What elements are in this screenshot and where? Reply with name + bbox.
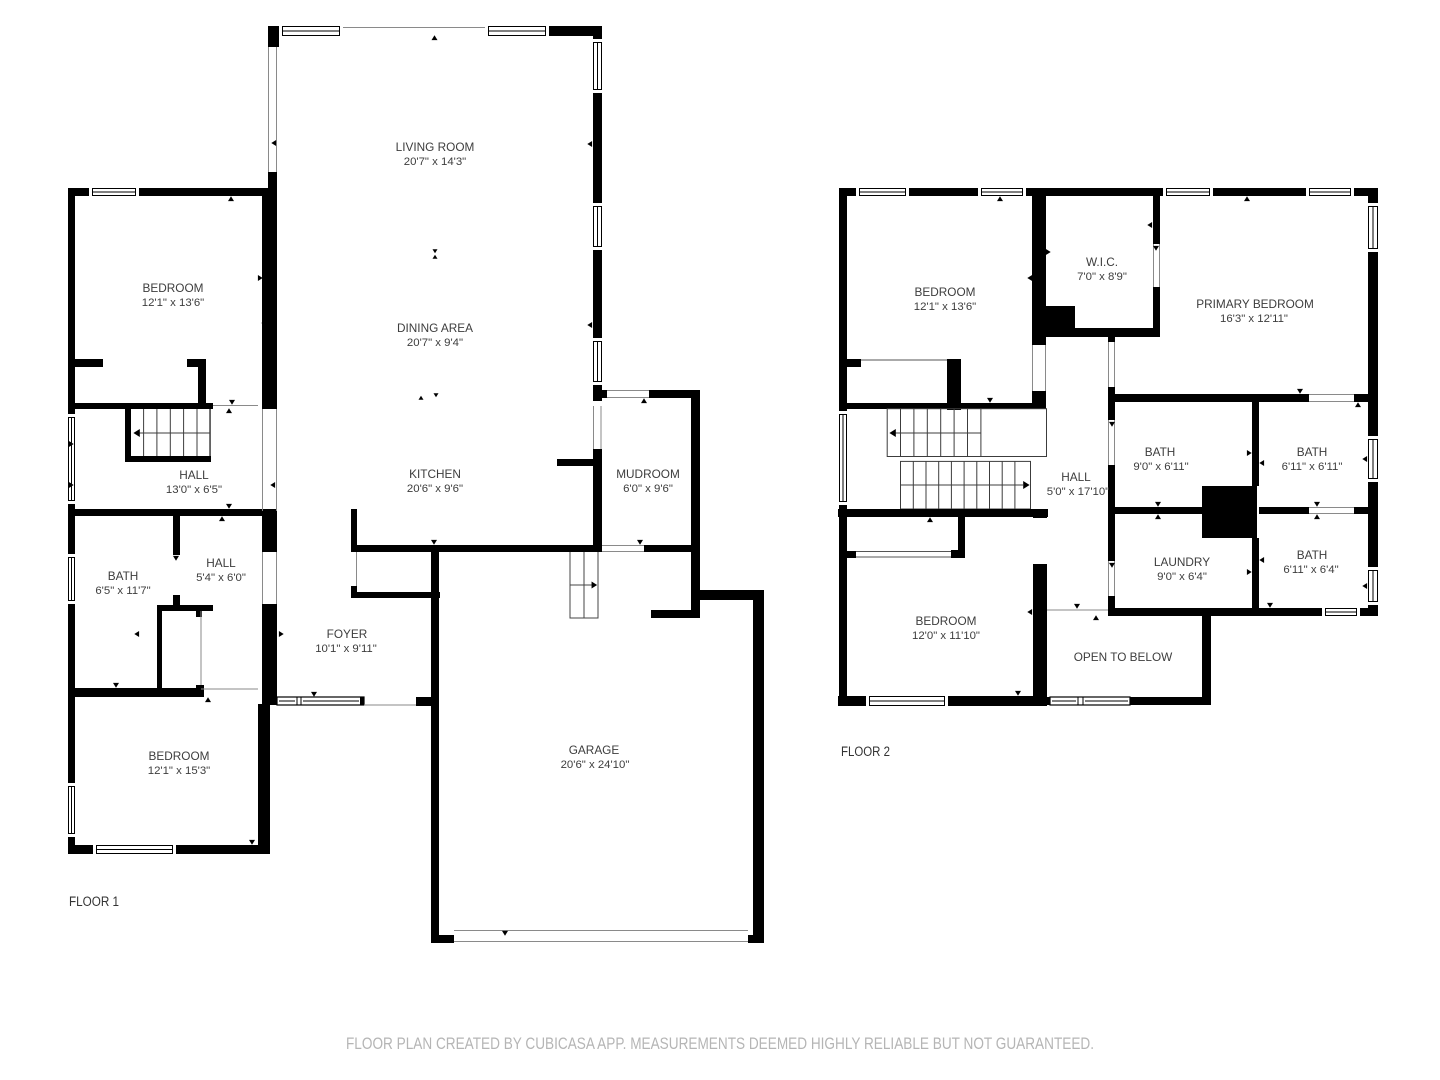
svg-text:LAUNDRY: LAUNDRY (1154, 555, 1210, 569)
svg-text:BATH: BATH (1297, 548, 1328, 562)
svg-text:10'1" x 9'11": 10'1" x 9'11" (315, 643, 377, 655)
svg-text:BEDROOM: BEDROOM (915, 285, 976, 299)
svg-text:7'0" x 8'9": 7'0" x 8'9" (1077, 271, 1127, 283)
svg-text:6'11" x 6'4": 6'11" x 6'4" (1283, 564, 1338, 576)
svg-text:BEDROOM: BEDROOM (143, 281, 204, 295)
svg-text:5'0" x 17'10": 5'0" x 17'10" (1047, 486, 1109, 498)
svg-text:FLOOR 2: FLOOR 2 (841, 744, 890, 759)
svg-text:HALL: HALL (179, 468, 209, 482)
svg-text:20'6" x 24'10": 20'6" x 24'10" (561, 759, 630, 771)
svg-text:MUDROOM: MUDROOM (616, 467, 680, 481)
svg-text:PRIMARY BEDROOM: PRIMARY BEDROOM (1196, 297, 1314, 311)
svg-text:BATH: BATH (1145, 445, 1176, 459)
svg-text:FLOOR PLAN CREATED BY CUBICASA: FLOOR PLAN CREATED BY CUBICASA APP. MEAS… (346, 1034, 1094, 1053)
svg-text:6'11" x 6'11": 6'11" x 6'11" (1282, 461, 1343, 473)
svg-text:GARAGE: GARAGE (569, 743, 620, 757)
svg-text:9'0" x 6'11": 9'0" x 6'11" (1133, 461, 1188, 473)
svg-text:12'0" x 11'10": 12'0" x 11'10" (912, 630, 980, 642)
svg-text:BATH: BATH (108, 569, 139, 583)
svg-text:6'0" x 9'6": 6'0" x 9'6" (623, 483, 673, 495)
svg-text:12'1" x 13'6": 12'1" x 13'6" (914, 301, 976, 313)
svg-text:HALL: HALL (206, 556, 236, 570)
svg-text:12'1" x 15'3": 12'1" x 15'3" (148, 765, 210, 777)
svg-text:BEDROOM: BEDROOM (149, 749, 210, 763)
svg-text:16'3" x 12'11": 16'3" x 12'11" (1220, 313, 1288, 325)
svg-text:FLOOR 1: FLOOR 1 (69, 894, 119, 909)
svg-text:BEDROOM: BEDROOM (916, 614, 977, 628)
svg-text:FOYER: FOYER (327, 627, 368, 641)
svg-text:DINING AREA: DINING AREA (397, 321, 473, 335)
svg-text:20'6" x 9'6": 20'6" x 9'6" (407, 483, 463, 495)
svg-text:KITCHEN: KITCHEN (409, 467, 461, 481)
svg-text:9'0" x 6'4": 9'0" x 6'4" (1157, 571, 1207, 583)
svg-text:20'7" x 14'3": 20'7" x 14'3" (404, 156, 466, 168)
svg-text:12'1" x 13'6": 12'1" x 13'6" (142, 297, 204, 309)
svg-text:6'5" x 11'7": 6'5" x 11'7" (95, 585, 150, 597)
svg-text:HALL: HALL (1061, 470, 1091, 484)
svg-text:20'7" x 9'4": 20'7" x 9'4" (407, 337, 463, 349)
svg-text:OPEN TO BELOW: OPEN TO BELOW (1074, 650, 1173, 664)
svg-text:LIVING ROOM: LIVING ROOM (396, 140, 475, 154)
svg-text:W.I.C.: W.I.C. (1086, 255, 1118, 269)
svg-text:5'4" x 6'0": 5'4" x 6'0" (196, 572, 246, 584)
svg-text:BATH: BATH (1297, 445, 1328, 459)
svg-text:13'0" x 6'5": 13'0" x 6'5" (166, 484, 222, 496)
